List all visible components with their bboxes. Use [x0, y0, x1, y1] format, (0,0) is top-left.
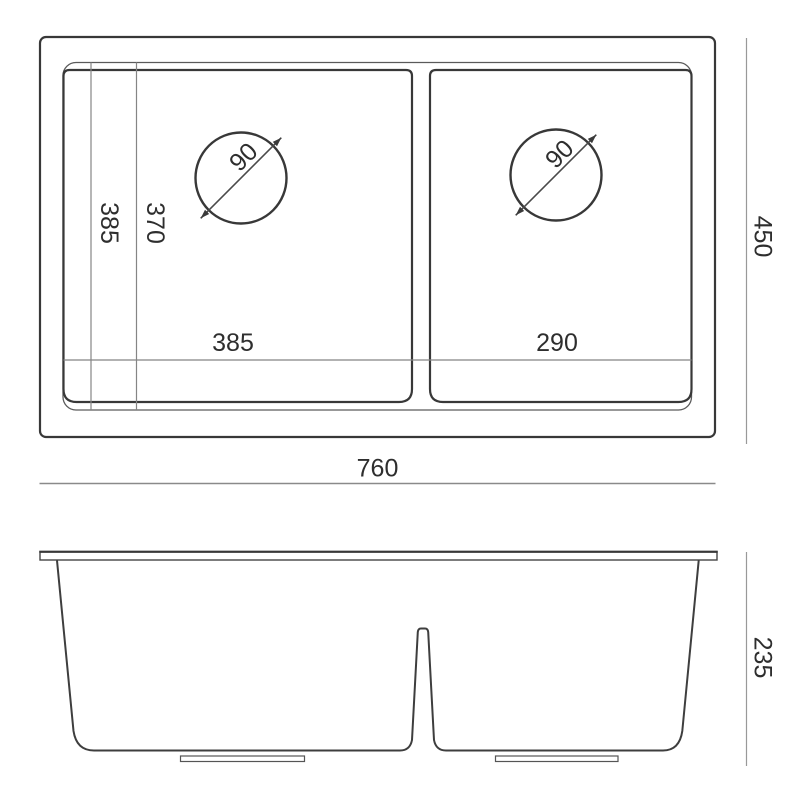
svg-text:235: 235	[749, 637, 777, 679]
svg-text:290: 290	[536, 329, 578, 357]
svg-text:90: 90	[540, 134, 579, 173]
svg-text:370: 370	[141, 202, 169, 244]
svg-text:90: 90	[224, 137, 263, 176]
svg-text:385: 385	[95, 202, 123, 244]
svg-text:450: 450	[749, 216, 777, 258]
svg-text:385: 385	[212, 329, 254, 357]
svg-text:760: 760	[357, 455, 399, 483]
